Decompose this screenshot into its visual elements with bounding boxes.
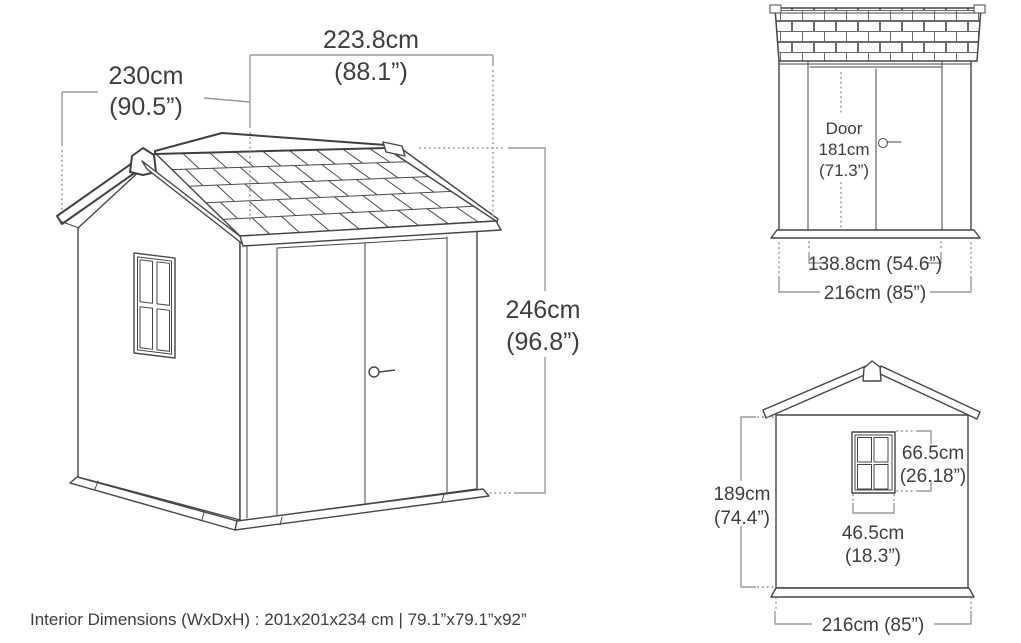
width-cm-label: 223.8cm [323,26,419,54]
diagram-canvas: 223.8cm (88.1”) 230cm (90.5”) 246cm (96.… [0,0,1021,643]
width-inch-label: (88.1”) [334,58,408,86]
front-overall-width-label: 216cm (85”) [824,283,926,304]
interior-dimensions-note: Interior Dimensions (WxDxH) : 201x201x23… [30,610,527,630]
door-width-label: 138.8cm (54.6”) [808,254,942,275]
side-window [134,253,175,358]
door-label: Door [826,119,863,138]
main-isometric-view: 223.8cm (88.1”) 230cm (90.5”) 246cm (96.… [57,26,581,530]
window-width-inch-label: (18.3”) [845,546,901,567]
front-walls [779,61,971,230]
rear-height-inch-label: (74.4”) [714,508,770,529]
rear-roof [763,361,980,419]
rear-height-cm-label: 189cm [713,484,770,505]
depth-inch-label: (90.5”) [109,93,183,121]
height-inch-label: (96.8”) [506,328,580,356]
rear-base [771,588,974,597]
height-cm-label: 246cm [505,296,580,324]
door-height-inch-label: (71.3”) [819,161,869,180]
depth-cm-label: 230cm [108,62,183,90]
shed-front-wall [240,230,477,521]
rear-height-dimension: 189cm (74.4”) [713,417,774,587]
rear-overall-width-dimension: 216cm (85”) [775,598,971,636]
door-width-dimension: 138.8cm (54.6”) [808,242,942,275]
door-height-cm-label: 181cm [818,140,869,159]
rear-elevation-view: 189cm (74.4”) 66.5cm (26.18”) 46.5cm (18… [713,361,980,636]
window-height-cm-label: 66.5cm [902,443,964,464]
shed-dimensions-diagram: 223.8cm (88.1”) 230cm (90.5”) 246cm (96.… [0,0,1021,643]
window-width-cm-label: 46.5cm [842,523,904,544]
front-elevation-view: Door 181cm (71.3”) 138.8cm (54.6”) 216cm… [770,5,985,304]
front-base [771,230,980,238]
window-height-inch-label: (26.18”) [900,466,967,487]
door-height-dimension: Door 181cm (71.3”) [818,73,869,228]
rear-window [852,432,895,493]
rear-overall-width-label: 216cm (85”) [822,615,924,636]
front-roof-band [770,5,985,61]
